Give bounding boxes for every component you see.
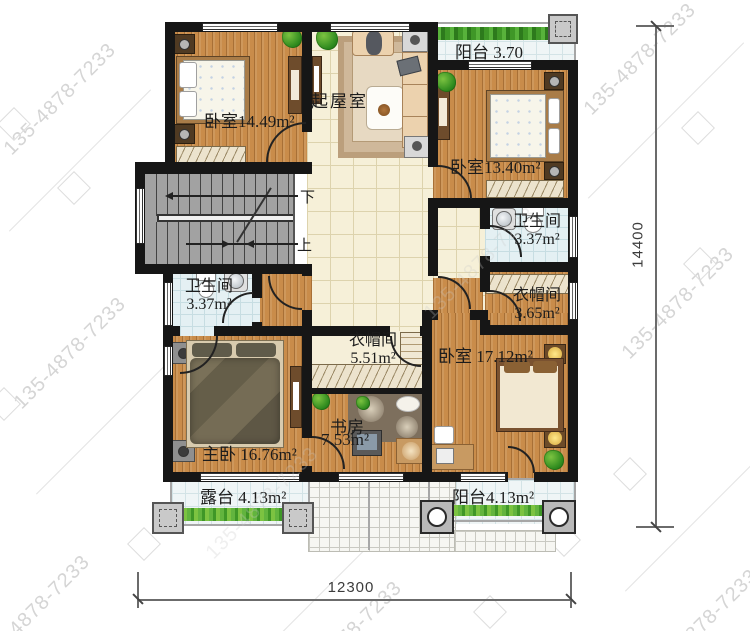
plant-symbol [436,72,456,92]
stairs-arrow-line-up [186,243,298,245]
window [330,23,410,31]
person-figure [366,31,382,55]
room-label-balcony-bottom: 阳台4.13m² [452,483,534,508]
bed-duvet [500,366,558,428]
stairs-down-label: 下 [300,186,315,207]
tv-screen [293,382,299,410]
room-area: 3.37m² [174,296,244,314]
window [136,188,144,244]
room-label-bedroom-tl: 卧室14.49m² [204,107,295,132]
room-label-bedroom-right: 卧室 17.12m² [438,342,533,367]
wall-segment [480,203,490,229]
lamp-glow [548,431,562,445]
wall-segment [307,388,428,394]
watermark-diamond [613,457,647,491]
side-table-lamp [410,35,420,45]
dimension-cap [137,572,139,608]
floor-plan: 135-4878-7233 135-4878-7233 135-4878-723… [0,0,750,631]
wall-segment [163,326,180,336]
pillow [179,62,197,88]
wall-segment [214,326,313,336]
window [338,473,404,481]
wall-segment [135,264,312,274]
hat [396,396,420,412]
desk-glow [402,442,420,460]
pillow [179,91,197,117]
arrow-left-icon [165,192,173,200]
arrow-left-icon [246,240,254,248]
pillow [236,343,276,357]
window [164,282,172,326]
wall-segment [470,310,488,320]
wall-segment [135,162,312,174]
room-label-bedroom-tr: 卧室13.40m² [450,153,541,178]
column-pillar [542,500,576,534]
room-name: 卫生间 [174,278,244,296]
column-pillar [420,500,454,534]
window [202,23,278,31]
dimension-cap [570,572,572,608]
room-label-master: 主卧 16.76m² [202,440,297,465]
pillow [548,98,560,124]
room-area: 5.51m² [336,350,410,368]
window [460,473,506,481]
nightstand [173,34,195,54]
pillar [548,14,578,44]
room-name: 衣帽间 [336,332,410,350]
pillar [282,502,314,534]
watermark-text: 135-4878-7233 [642,565,750,631]
arrow-right-icon [222,240,230,248]
stairs-up-label: 上 [297,234,312,255]
bed-mattress [490,94,546,158]
room-label-study-area: 7.53m² [321,430,369,450]
wall-segment [302,22,312,132]
dimension-line-vertical [655,26,657,528]
plant-symbol [544,450,564,470]
room-area: 3.65m² [500,305,574,323]
wall-segment [252,264,262,298]
stairs-hall-edge [293,167,295,267]
stairs-arrow-line-down [172,195,298,197]
watermark-line [9,89,151,231]
watermark-line [36,367,164,495]
table-decor [378,104,390,116]
wardrobe [486,180,564,198]
patio-divider [368,478,370,550]
wall-segment [165,22,175,172]
wall-segment [302,336,312,438]
watermark-line [588,42,744,198]
dimension-width-label: 12300 [311,579,391,596]
tv-screen [439,98,447,126]
computer [436,448,454,464]
wall-segment [428,198,438,276]
watermark-text: 135-4878-7233 [10,293,131,414]
floor-patio-side [454,530,556,552]
nightstand [173,124,195,144]
pillar [152,502,184,534]
stairs-handrail [157,214,295,222]
desk-chair [434,426,454,444]
plant-symbol [312,392,330,410]
dresser-top [291,70,299,100]
side-table-lamp [412,141,422,151]
nightstand [544,162,564,180]
plant-symbol [356,396,370,410]
room-label-cloak-right: 衣帽间 3.65m² [500,287,574,323]
pillow [533,361,557,373]
watermark-diamond [681,111,715,145]
bed-duvet [190,358,280,444]
room-label-bath-left: 卫生间 3.37m² [174,278,244,314]
wall-segment [302,264,312,276]
wall-segment [480,325,578,335]
wall-segment [428,70,438,167]
room-name: 衣帽间 [500,287,574,305]
room-label-living: 起屋室 [311,87,368,112]
pillow [548,128,560,154]
dimension-height-label: 14400 [630,205,647,285]
room-label-cloak-center: 衣帽间 5.51m² [336,332,410,368]
dimension-line-horizontal [138,599,572,601]
watermark-text: 135-4878-7233 [0,39,121,160]
wall-segment [428,198,578,208]
watermark-text: 135-4878-7233 [0,551,95,631]
rug-glow [396,416,418,438]
window [164,346,172,376]
room-label-balcony-top: 阳台 3.70 [455,38,523,63]
nightstand [544,72,564,90]
